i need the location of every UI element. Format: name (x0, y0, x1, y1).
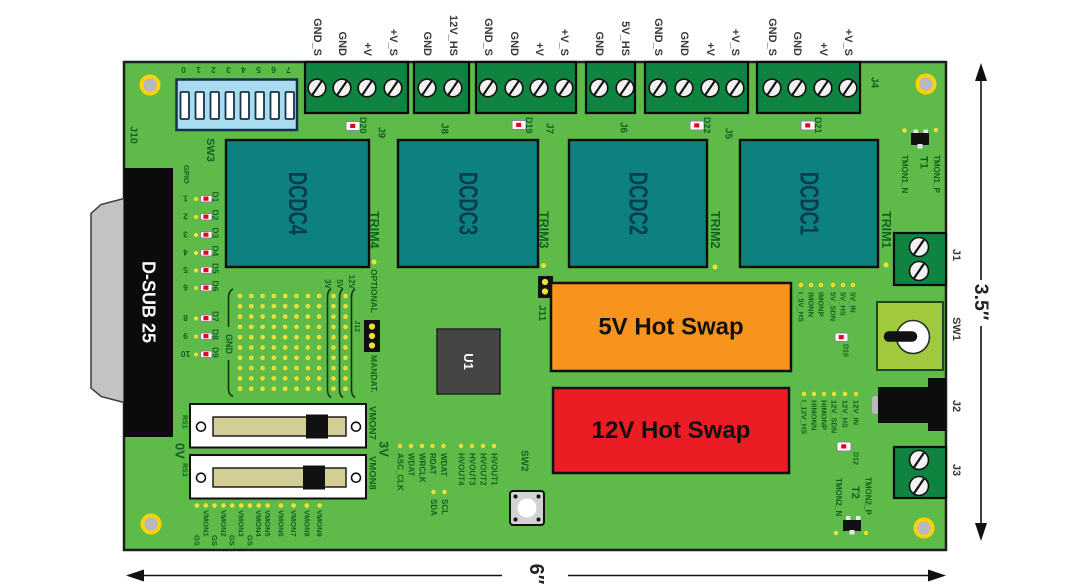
svg-text:OPTIONAL: OPTIONAL (369, 269, 379, 313)
svg-text:0: 0 (181, 65, 186, 75)
svg-text:GND: GND (791, 32, 803, 57)
svg-text:J3: J3 (950, 464, 962, 476)
svg-text:3: 3 (226, 65, 231, 75)
svg-text:MANDAT.: MANDAT. (369, 355, 379, 393)
svg-text:HVOUT4: HVOUT4 (457, 453, 466, 486)
svg-text:12V Hot Swap: 12V Hot Swap (592, 417, 751, 444)
svg-text:5: 5 (256, 65, 261, 75)
svg-text:SW1: SW1 (950, 317, 962, 341)
svg-text:4: 4 (241, 65, 246, 75)
svg-text:SW3: SW3 (204, 138, 216, 162)
svg-text:WRCLK: WRCLK (418, 453, 427, 483)
svg-text:VMON7: VMON7 (289, 510, 298, 537)
svg-text:RDAT: RDAT (428, 453, 437, 475)
svg-text:GND: GND (224, 334, 234, 355)
svg-text:J12: J12 (353, 321, 360, 333)
svg-text:VMON6: VMON6 (276, 510, 285, 537)
svg-text:4: 4 (183, 248, 188, 258)
svg-text:GS: GS (228, 535, 237, 546)
svg-text:+V: +V (361, 42, 373, 56)
svg-text:D19: D19 (524, 117, 534, 134)
svg-text:T1: T1 (918, 156, 930, 169)
svg-text:RS1: RS1 (181, 415, 188, 429)
svg-text:J2: J2 (950, 400, 962, 412)
svg-text:6″: 6″ (525, 564, 547, 585)
svg-text:GND_S: GND_S (652, 18, 664, 56)
svg-text:3: 3 (183, 230, 188, 240)
svg-text:J4: J4 (869, 77, 880, 89)
svg-text:3.5″: 3.5″ (970, 284, 992, 320)
svg-text:HVOUT2: HVOUT2 (479, 453, 488, 486)
svg-text:6: 6 (183, 283, 188, 293)
svg-text:10: 10 (181, 349, 191, 359)
svg-text:VMON4: VMON4 (254, 510, 263, 538)
svg-text:12V_HS: 12V_HS (841, 400, 850, 428)
svg-text:VMON7: VMON7 (367, 406, 378, 440)
svg-text:5V_IN: 5V_IN (849, 292, 858, 313)
svg-text:DCDC2: DCDC2 (624, 172, 653, 235)
svg-text:D10: D10 (842, 344, 849, 357)
svg-text:DCDC1: DCDC1 (795, 172, 824, 235)
svg-text:GND_S: GND_S (766, 18, 778, 56)
svg-text:5V_SDN: 5V_SDN (829, 292, 838, 321)
svg-text:D6: D6 (211, 281, 221, 292)
svg-text:GPIO: GPIO (182, 165, 191, 184)
svg-text:J5: J5 (723, 128, 734, 140)
svg-text:GND: GND (421, 32, 433, 57)
svg-text:I_5V_HS: I_5V_HS (797, 292, 806, 322)
svg-text:+V_S: +V_S (387, 29, 399, 56)
svg-text:IMONP: IMONP (817, 292, 826, 317)
svg-text:HIMONN: HIMONN (810, 400, 819, 430)
svg-text:D5: D5 (211, 263, 221, 274)
svg-text:TRIM4: TRIM4 (367, 211, 381, 249)
svg-text:GND_S: GND_S (311, 18, 323, 56)
svg-text:D9: D9 (211, 347, 221, 358)
svg-text:I_12V_HS: I_12V_HS (800, 400, 809, 434)
svg-text:12V_SDN: 12V_SDN (830, 400, 839, 433)
svg-text:GS: GS (193, 535, 202, 546)
svg-text:DCDC3: DCDC3 (454, 172, 483, 235)
svg-text:SCL: SCL (440, 499, 449, 515)
svg-text:GND: GND (678, 32, 690, 57)
svg-text:TMON1_N: TMON1_N (900, 155, 909, 193)
svg-text:D21: D21 (813, 117, 823, 134)
svg-text:ASC_CLK: ASC_CLK (396, 453, 405, 491)
svg-text:J11: J11 (536, 305, 547, 322)
svg-text:+V: +V (817, 42, 829, 56)
svg-text:HIMONP: HIMONP (820, 400, 829, 430)
svg-text:D2: D2 (211, 210, 221, 221)
svg-text:7: 7 (286, 65, 291, 75)
svg-text:VMON3: VMON3 (237, 510, 246, 537)
svg-text:DCDC4: DCDC4 (283, 172, 312, 236)
svg-text:TMON2_N: TMON2_N (834, 478, 843, 516)
svg-text:5V_HS: 5V_HS (619, 21, 631, 56)
svg-text:D7: D7 (211, 311, 221, 322)
svg-text:IMONN: IMONN (807, 292, 816, 317)
svg-text:SDA: SDA (429, 499, 438, 516)
svg-text:U1: U1 (461, 353, 476, 370)
svg-text:TMON1_P: TMON1_P (932, 155, 941, 193)
svg-text:0V: 0V (173, 443, 188, 459)
svg-text:D1: D1 (211, 192, 221, 203)
svg-text:GND: GND (336, 32, 348, 57)
svg-text:TRIM1: TRIM1 (879, 211, 893, 249)
svg-text:D4: D4 (211, 246, 221, 257)
svg-text:VMON8: VMON8 (367, 456, 378, 490)
svg-text:+V_S: +V_S (558, 29, 570, 56)
svg-text:J7: J7 (544, 123, 555, 135)
svg-text:2: 2 (211, 65, 216, 75)
svg-text:VMON2: VMON2 (219, 510, 228, 537)
svg-text:6: 6 (271, 65, 276, 75)
svg-text:GS: GS (245, 535, 254, 546)
svg-text:12V: 12V (347, 275, 356, 290)
svg-text:2: 2 (183, 212, 188, 222)
svg-text:J10: J10 (128, 126, 140, 144)
svg-text:J8: J8 (439, 123, 450, 135)
svg-text:GND: GND (508, 32, 520, 57)
svg-text:1: 1 (183, 194, 188, 204)
svg-text:1: 1 (196, 65, 201, 75)
svg-text:TRIM3: TRIM3 (537, 211, 551, 249)
svg-text:WDAT: WDAT (439, 453, 448, 477)
svg-text:9: 9 (183, 331, 188, 341)
svg-text:D22: D22 (702, 117, 712, 134)
svg-text:GS: GS (210, 535, 219, 546)
svg-text:T2: T2 (849, 486, 861, 499)
svg-text:3V: 3V (377, 441, 392, 457)
svg-text:GND: GND (593, 32, 605, 57)
svg-text:RS3: RS3 (181, 463, 188, 477)
svg-text:HVOUT1: HVOUT1 (490, 453, 499, 486)
svg-text:WDAT: WDAT (407, 453, 416, 477)
svg-text:5: 5 (183, 265, 188, 275)
svg-text:5V Hot Swap: 5V Hot Swap (598, 314, 743, 341)
svg-text:VMON1: VMON1 (201, 510, 210, 537)
svg-text:5V_HS: 5V_HS (839, 292, 848, 316)
svg-text:D8: D8 (211, 329, 221, 340)
svg-text:D3: D3 (211, 228, 221, 239)
svg-text:D20: D20 (358, 117, 368, 134)
svg-text:12V_IN: 12V_IN (852, 400, 861, 425)
svg-text:VMON5: VMON5 (263, 510, 272, 537)
svg-text:12V_HS: 12V_HS (447, 15, 459, 56)
svg-text:8: 8 (183, 313, 188, 323)
svg-text:5V: 5V (335, 279, 344, 289)
svg-text:D12: D12 (852, 452, 859, 465)
svg-text:3V: 3V (323, 279, 332, 289)
svg-text:J1: J1 (950, 249, 962, 261)
svg-text:VMON9: VMON9 (315, 510, 324, 537)
svg-text:+V: +V (533, 42, 545, 56)
svg-text:J9: J9 (376, 127, 387, 139)
svg-text:GND_S: GND_S (482, 18, 494, 56)
svg-text:J6: J6 (618, 122, 629, 134)
svg-text:+V_S: +V_S (729, 29, 741, 56)
svg-text:+V: +V (704, 42, 716, 56)
svg-text:TMON2_P: TMON2_P (864, 477, 873, 515)
svg-text:VMON8: VMON8 (302, 510, 311, 537)
svg-text:SW2: SW2 (519, 450, 530, 472)
svg-text:+V_S: +V_S (842, 29, 854, 56)
svg-text:HVOUT3: HVOUT3 (468, 453, 477, 486)
svg-text:D-SUB 25: D-SUB 25 (139, 261, 159, 343)
svg-text:TRIM2: TRIM2 (708, 211, 722, 249)
